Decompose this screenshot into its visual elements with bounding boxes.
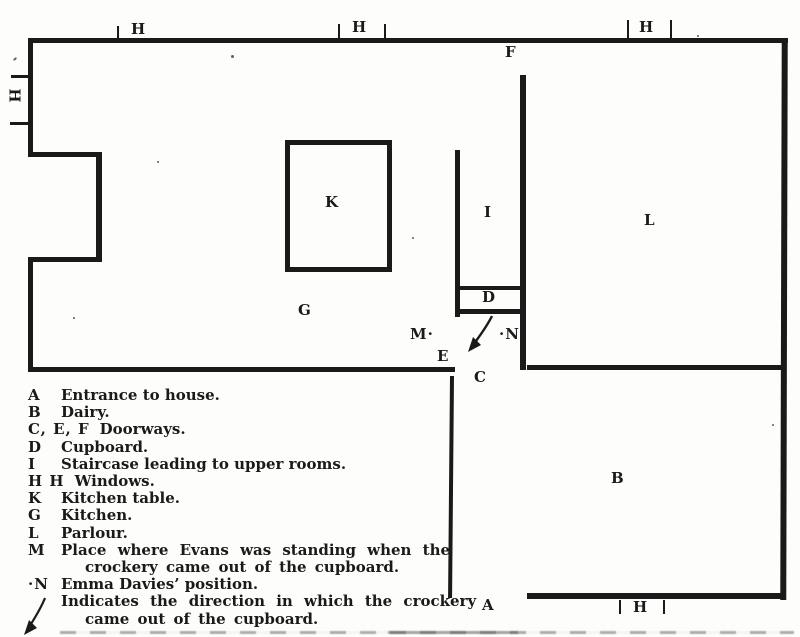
wall-staircase-left	[455, 150, 460, 317]
legend-key: G	[28, 507, 51, 524]
scan-speck	[231, 55, 234, 58]
legend-text: Dairy.	[61, 403, 110, 421]
legend-key: C, E, F	[28, 421, 90, 438]
legend-key: L	[28, 525, 51, 542]
legend-text: Kitchen.	[61, 506, 132, 524]
legend-key: ·N	[28, 576, 51, 593]
wall-recess-right	[96, 152, 102, 262]
plan-label-evans-position: M·	[410, 327, 434, 341]
legend-key: M	[28, 542, 51, 559]
legend-item: GKitchen.	[28, 507, 468, 524]
legend-text: Place where Evans was standing when the	[61, 541, 450, 559]
plan-label-kitchen-table: K	[325, 195, 339, 209]
wall-recess-bottom	[28, 257, 102, 262]
window-tick	[670, 20, 672, 40]
wall-top-exterior	[28, 38, 788, 43]
window-tick	[619, 600, 621, 614]
scan-speck	[412, 237, 414, 239]
plan-label-cupboard: D	[482, 290, 496, 304]
legend-item: KKitchen table.	[28, 490, 468, 507]
legend-key: D	[28, 439, 51, 456]
window-tick	[627, 20, 629, 40]
legend-item: ·NEmma Davies’ position.	[28, 576, 468, 593]
direction-arrow-icon	[21, 595, 49, 637]
plan-label-doorway-f: F	[505, 45, 517, 59]
legend-item: C, E, FDoorways.	[28, 421, 468, 438]
legend-key: H H	[28, 473, 65, 490]
plan-label-entrance-a: A	[482, 598, 495, 612]
legend: AEntrance to house.BDairy.C, E, FDoorway…	[28, 387, 468, 628]
legend-item: IStaircase leading to upper rooms.	[28, 456, 468, 473]
window-tick	[384, 24, 386, 40]
plan-label-doorway-e: E	[437, 349, 449, 363]
legend-item: DCupboard.	[28, 439, 468, 456]
plan-label-window-top-1: H	[131, 22, 146, 36]
plan-label-davies-position: ·N	[499, 327, 520, 341]
scan-smear	[388, 631, 518, 634]
scan-speck	[13, 57, 17, 61]
scan-speck	[73, 317, 75, 319]
wall-recess-top	[28, 152, 102, 157]
crockery-direction-arrow-icon	[462, 314, 498, 356]
scanned-page: HHHHHFKILGDM··NECBA AEntrance to house.B…	[0, 0, 800, 637]
plan-label-kitchen: G	[298, 303, 312, 317]
legend-key: K	[28, 490, 51, 507]
wall-right-exterior	[780, 38, 787, 600]
legend-text: Doorways.	[100, 420, 186, 438]
legend-item: LParlour.	[28, 525, 468, 542]
wall-parlour-dairy	[527, 365, 786, 370]
plan-label-window-bottom: H	[633, 600, 648, 614]
window-tick	[338, 24, 340, 40]
legend-text: Indicates the direction in which the cro…	[61, 592, 476, 610]
legend-text: Staircase leading to upper rooms.	[61, 455, 346, 473]
window-tick	[11, 75, 28, 78]
wall-left-lower	[28, 257, 33, 372]
plan-label-parlour: L	[644, 213, 656, 227]
legend-key: A	[28, 387, 51, 404]
legend-text: Kitchen table.	[61, 489, 180, 507]
scan-speck	[157, 161, 159, 163]
scan-speck	[697, 35, 699, 37]
legend-item: AEntrance to house.	[28, 387, 468, 404]
legend-text-continued: crockery came out of the cupboard.	[28, 559, 468, 576]
scan-speck	[772, 424, 774, 426]
plan-label-window-top-2: H	[352, 20, 367, 34]
wall-kitchen-bottom	[28, 367, 455, 372]
window-tick	[117, 26, 119, 40]
legend-key: I	[28, 456, 51, 473]
legend-item: MPlace where Evans was standing when the	[28, 542, 468, 559]
legend-item: BDairy.	[28, 404, 468, 421]
legend-text: Parlour.	[61, 524, 128, 542]
legend-item: H HWindows.	[28, 473, 468, 490]
legend-text: Windows.	[75, 472, 155, 490]
plan-label-window-left: H	[8, 88, 22, 103]
wall-dairy-bottom	[527, 593, 786, 599]
plan-label-window-top-3: H	[639, 20, 654, 34]
legend-text: Cupboard.	[61, 438, 148, 456]
wall-left-upper	[28, 40, 33, 154]
plan-label-staircase: I	[484, 205, 492, 219]
plan-label-doorway-c: C	[474, 370, 487, 384]
plan-label-dairy: B	[611, 471, 625, 485]
legend-text: Emma Davies’ position.	[61, 575, 258, 593]
legend-item: Indicates the direction in which the cro…	[28, 593, 468, 610]
window-tick	[663, 600, 665, 614]
window-tick	[10, 122, 28, 125]
wall-kitchen-parlour	[520, 75, 526, 370]
legend-text: Entrance to house.	[61, 386, 220, 404]
legend-key: B	[28, 404, 51, 421]
legend-text-continued: came out of the cupboard.	[28, 611, 468, 628]
